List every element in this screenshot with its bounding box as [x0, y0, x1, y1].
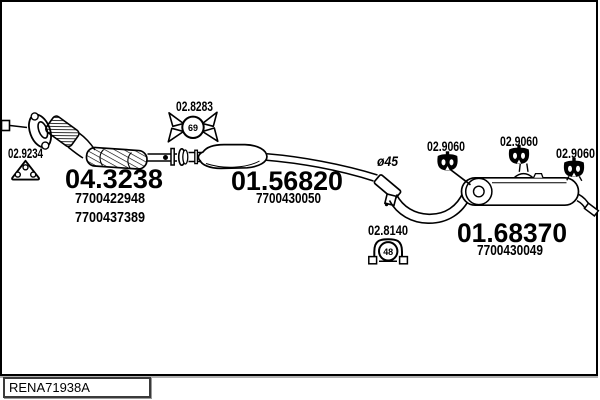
part-code-rubber-mount-rear: 02.9060: [556, 145, 595, 161]
part-code-pipe-clamp: 02.8140: [368, 222, 408, 238]
sleeve-joint: [374, 174, 402, 206]
hanger-diameter-label: 69: [188, 123, 198, 134]
catalog-code-plate: RENA71938A: [3, 377, 151, 398]
part-code-rubber-hanger: 02.8283: [176, 98, 213, 114]
pipe-diameter-label: ø45: [377, 154, 398, 169]
oe-number-centre-silencer: 7700430050: [256, 190, 321, 207]
oe-number-catalyst-1: 7700422948: [75, 190, 145, 207]
pipe-clamp-icon: 48: [369, 239, 408, 264]
part-code-rubber-mount-front: 02.9060: [427, 138, 465, 154]
exhaust-diagram-page: 69 48 02.9234 04.3238 7700422948 7700437…: [0, 0, 600, 400]
part-code-flange-gasket: 02.9234: [8, 145, 43, 161]
oe-number-catalyst-2: 7700437389: [75, 209, 145, 226]
rubber-mount-front-icon: [438, 151, 457, 170]
exhaust-diagram: 69 48 02.9234 04.3238 7700422948 7700437…: [0, 0, 600, 378]
rubber-hanger-icon: 69: [168, 112, 218, 142]
oe-number-rear-silencer: 7700430049: [477, 242, 543, 259]
flange-gasket-icon: [12, 161, 39, 180]
clamp-diameter-label: 48: [383, 247, 393, 258]
part-code-rubber-mount-mid: 02.9060: [500, 133, 538, 149]
catalog-code: RENA71938A: [9, 380, 90, 395]
